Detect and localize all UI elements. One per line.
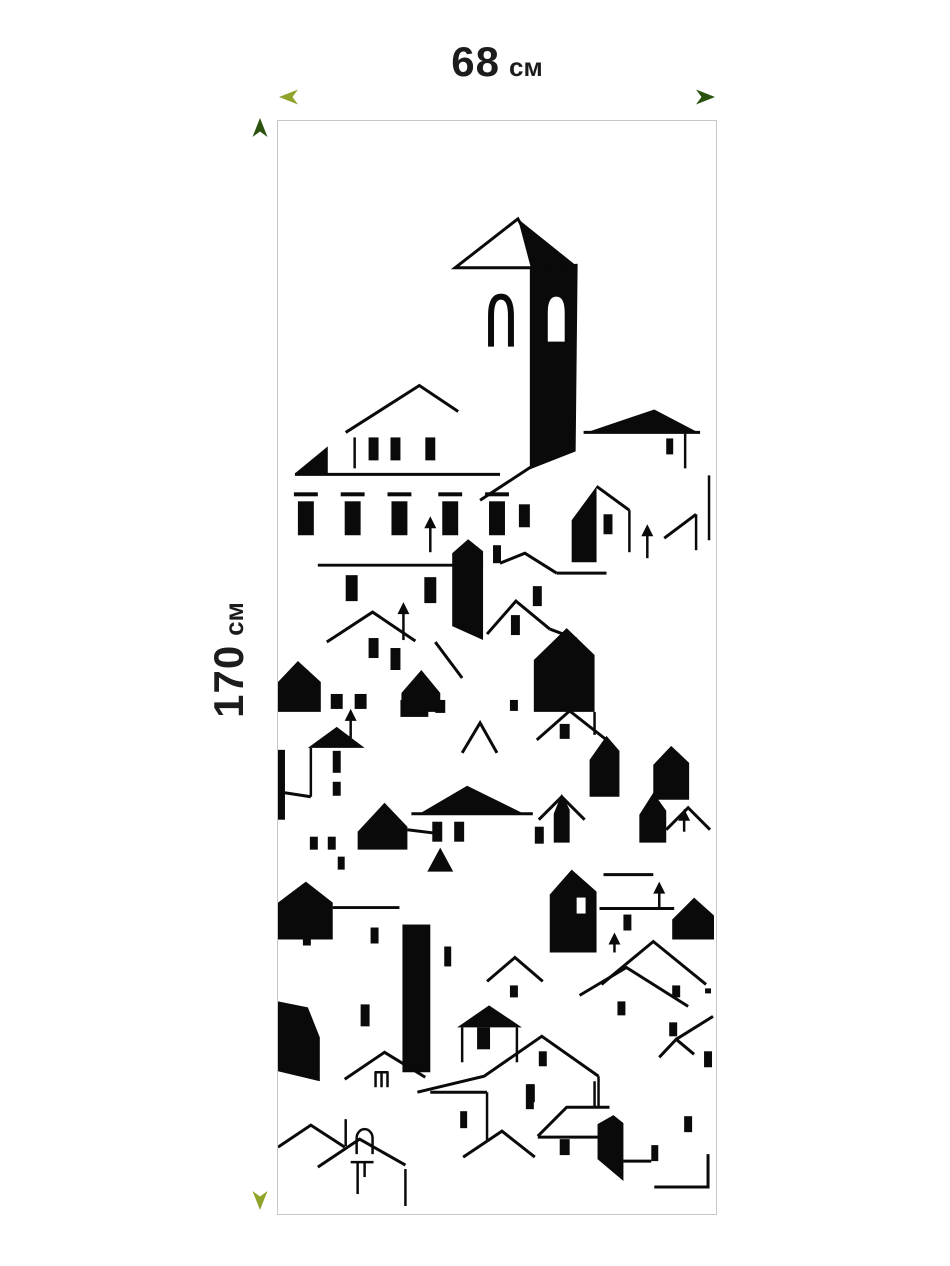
height-dimension-label: 170см <box>199 540 259 780</box>
wall-panel <box>277 120 717 1215</box>
height-unit: см <box>219 602 249 636</box>
up-arrows-group <box>345 516 690 952</box>
mid-town-group <box>278 586 710 871</box>
height-value: 170 <box>205 645 252 718</box>
width-dimension-label: 68см <box>277 36 717 88</box>
height-arrow <box>252 116 268 1212</box>
width-unit: см <box>509 52 543 82</box>
product-dimension-diagram: 68см 170см <box>0 0 950 1266</box>
town-illustration <box>278 121 716 1214</box>
width-value: 68 <box>451 38 500 85</box>
width-arrow <box>277 89 717 105</box>
tower-group <box>455 219 577 470</box>
lower-town-group <box>278 870 714 1206</box>
upper-town-group <box>294 386 709 641</box>
